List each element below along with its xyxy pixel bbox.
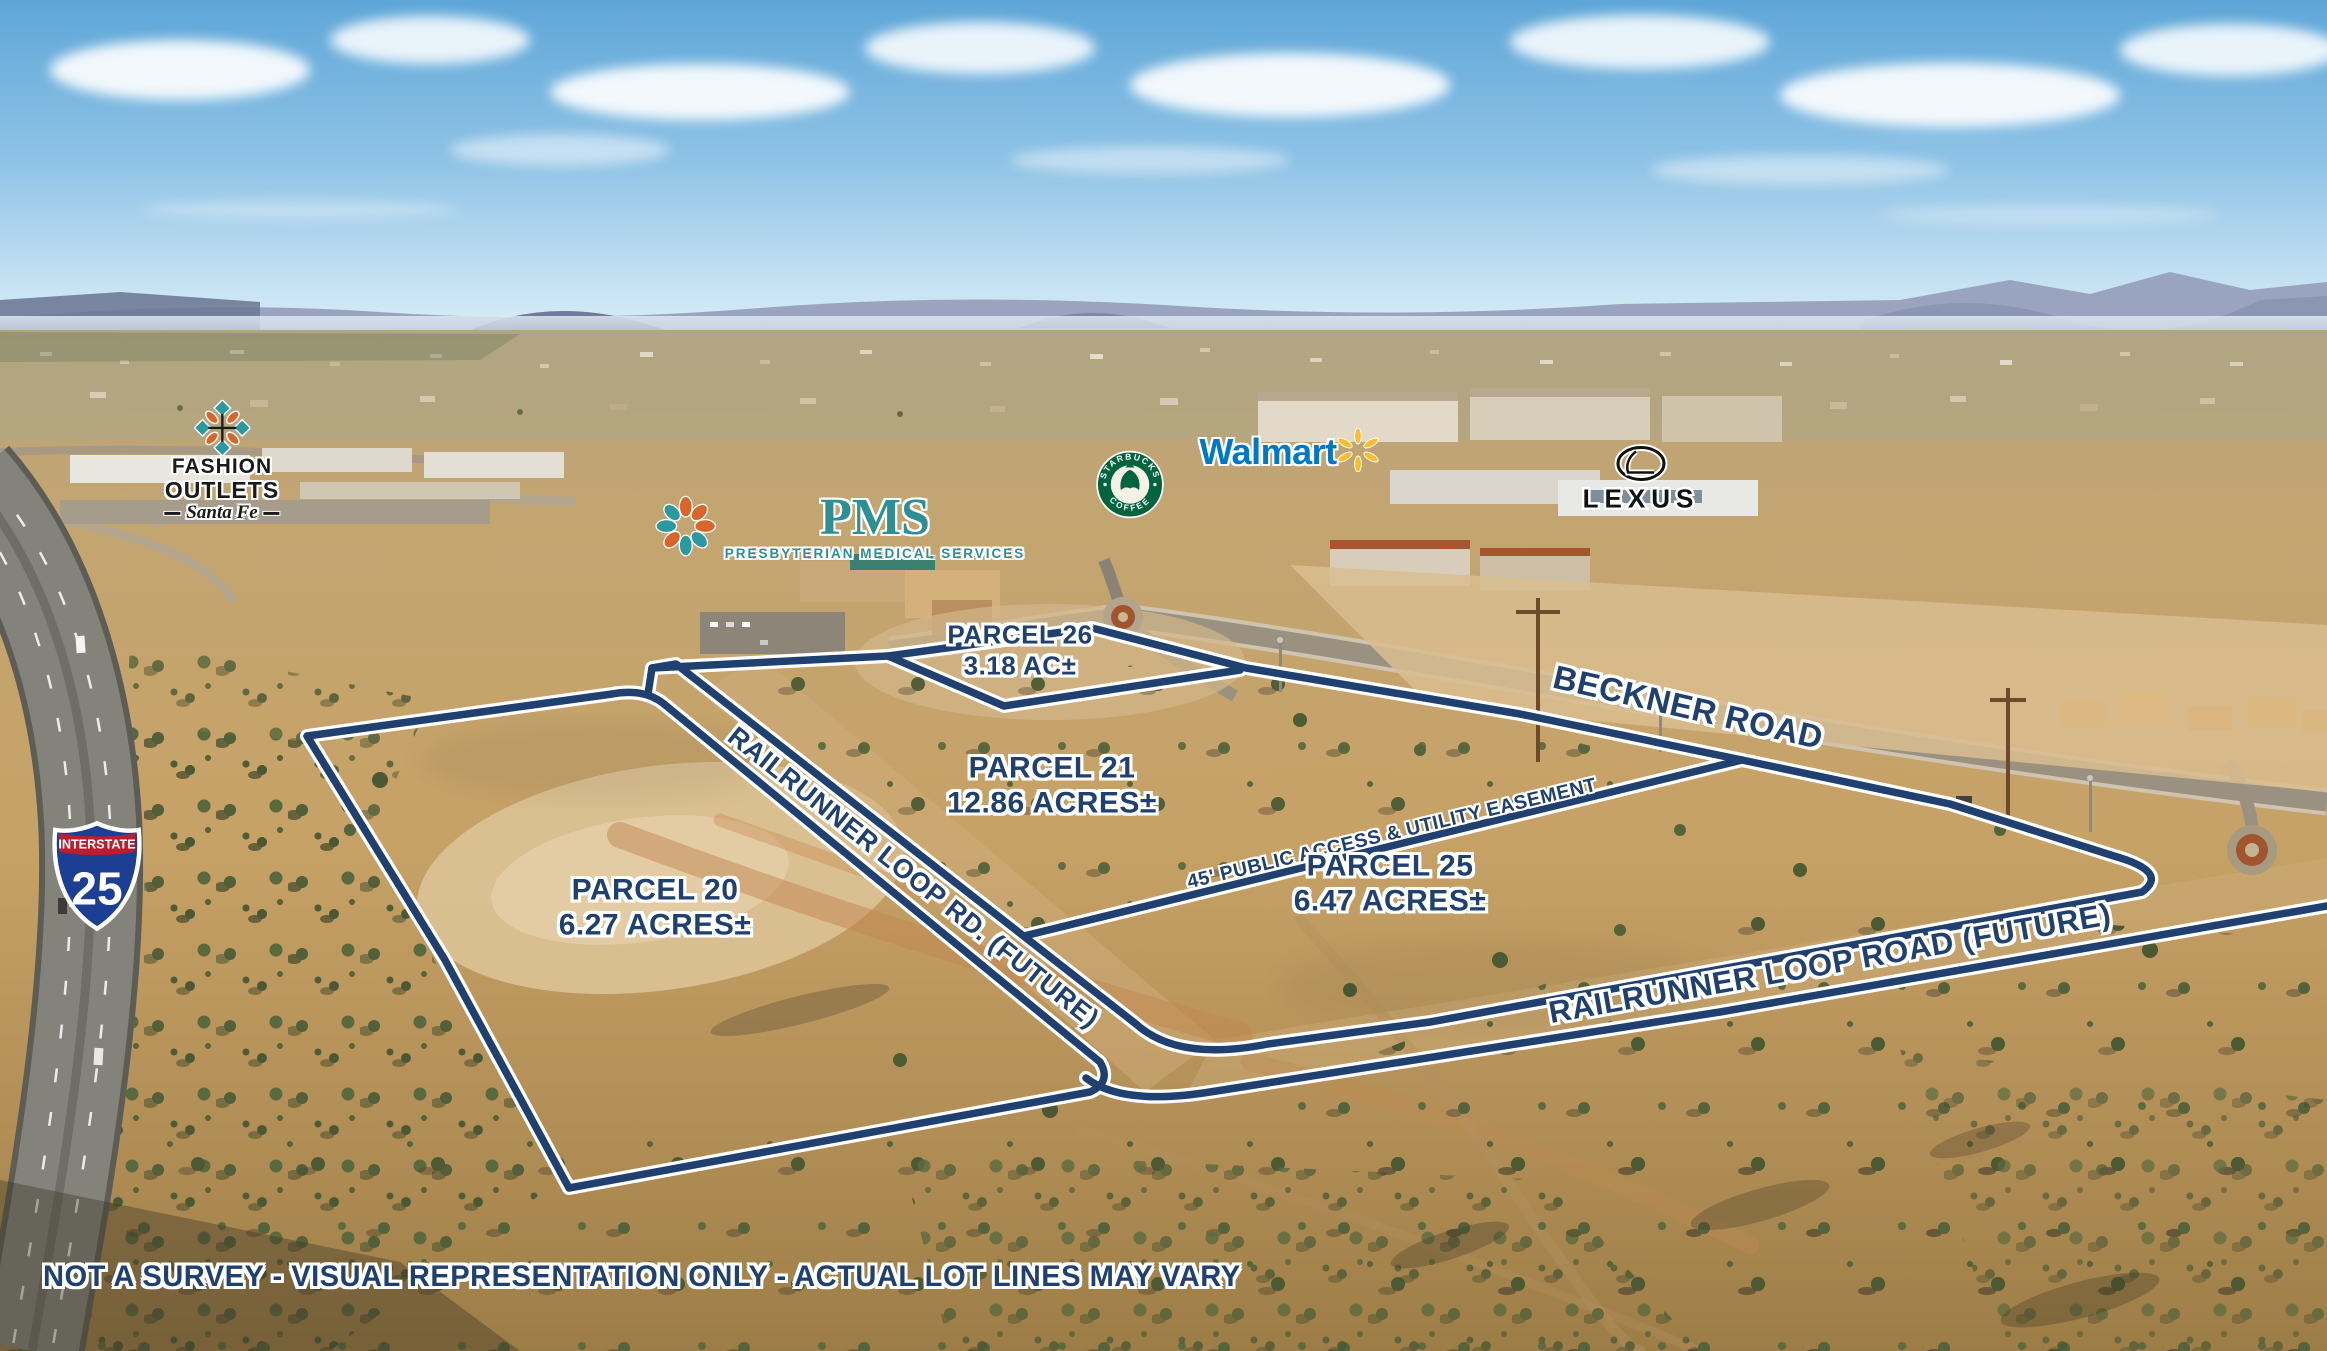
parcel-21-label: PARCEL 21 12.86 ACRES± [947, 751, 1157, 822]
parcel-26-name: PARCEL 26 [947, 619, 1092, 650]
interstate-25-shield: INTERSTATE 25 [50, 820, 144, 932]
interstate-label: INTERSTATE [58, 838, 135, 852]
parcel-25-area: 6.47 ACRES± [1294, 884, 1487, 919]
starbucks-icon: STARBUCKS COFFEE [1096, 451, 1164, 519]
lexus-wordmark: LEXUS [1583, 484, 1700, 514]
parcel-25-name: PARCEL 25 [1294, 849, 1487, 884]
parcel-25-label: PARCEL 25 6.47 ACRES± [1294, 849, 1487, 920]
parcel-boundary-overlay [0, 0, 2327, 1351]
walmart-spark-icon [1336, 428, 1380, 472]
lexus-icon: LEXUS [1566, 440, 1716, 520]
fashion-outlets-logo: FASHION OUTLETS Santa Fe [164, 400, 279, 524]
fashion-outlets-line1: FASHION [164, 456, 279, 478]
interstate-number: 25 [71, 863, 122, 915]
fashion-outlets-santa-fe: Santa Fe [186, 502, 257, 524]
disclaimer-text: NOT A SURVEY - VISUAL REPRESENTATION ONL… [43, 1260, 1241, 1294]
pms-abbr: PMS [725, 495, 1026, 542]
pms-icon [655, 495, 717, 557]
parcel-20-name: PARCEL 20 [559, 873, 752, 908]
walmart-logo: Walmart [1199, 431, 1336, 473]
fashion-outlets-line3: Santa Fe [164, 502, 279, 524]
fashion-outlets-icon [194, 400, 250, 456]
parcel-21-name: PARCEL 21 [947, 751, 1157, 786]
pms-logo: PMS PRESBYTERIAN MEDICAL SERVICES [655, 495, 1026, 561]
pms-subtitle: PRESBYTERIAN MEDICAL SERVICES [725, 546, 1026, 561]
dash-left [164, 512, 180, 515]
fashion-outlets-line2: OUTLETS [164, 478, 279, 502]
parcel-26-label: PARCEL 26 3.18 AC± [947, 619, 1092, 680]
starbucks-logo: STARBUCKS COFFEE [1096, 451, 1164, 524]
parcel-20-area: 6.27 ACRES± [559, 908, 752, 943]
parcel-26-area: 3.18 AC± [947, 650, 1092, 681]
parcel-21-area: 12.86 ACRES± [947, 786, 1157, 821]
walmart-wordmark: Walmart [1199, 431, 1336, 472]
aerial-parcel-map: BECKNER ROAD RAILRUNNER LOOP RD. (FUTURE… [0, 0, 2327, 1351]
parcel-20-label: PARCEL 20 6.27 ACRES± [559, 873, 752, 944]
dash-right [264, 512, 280, 515]
lexus-logo: LEXUS [1566, 440, 1716, 525]
